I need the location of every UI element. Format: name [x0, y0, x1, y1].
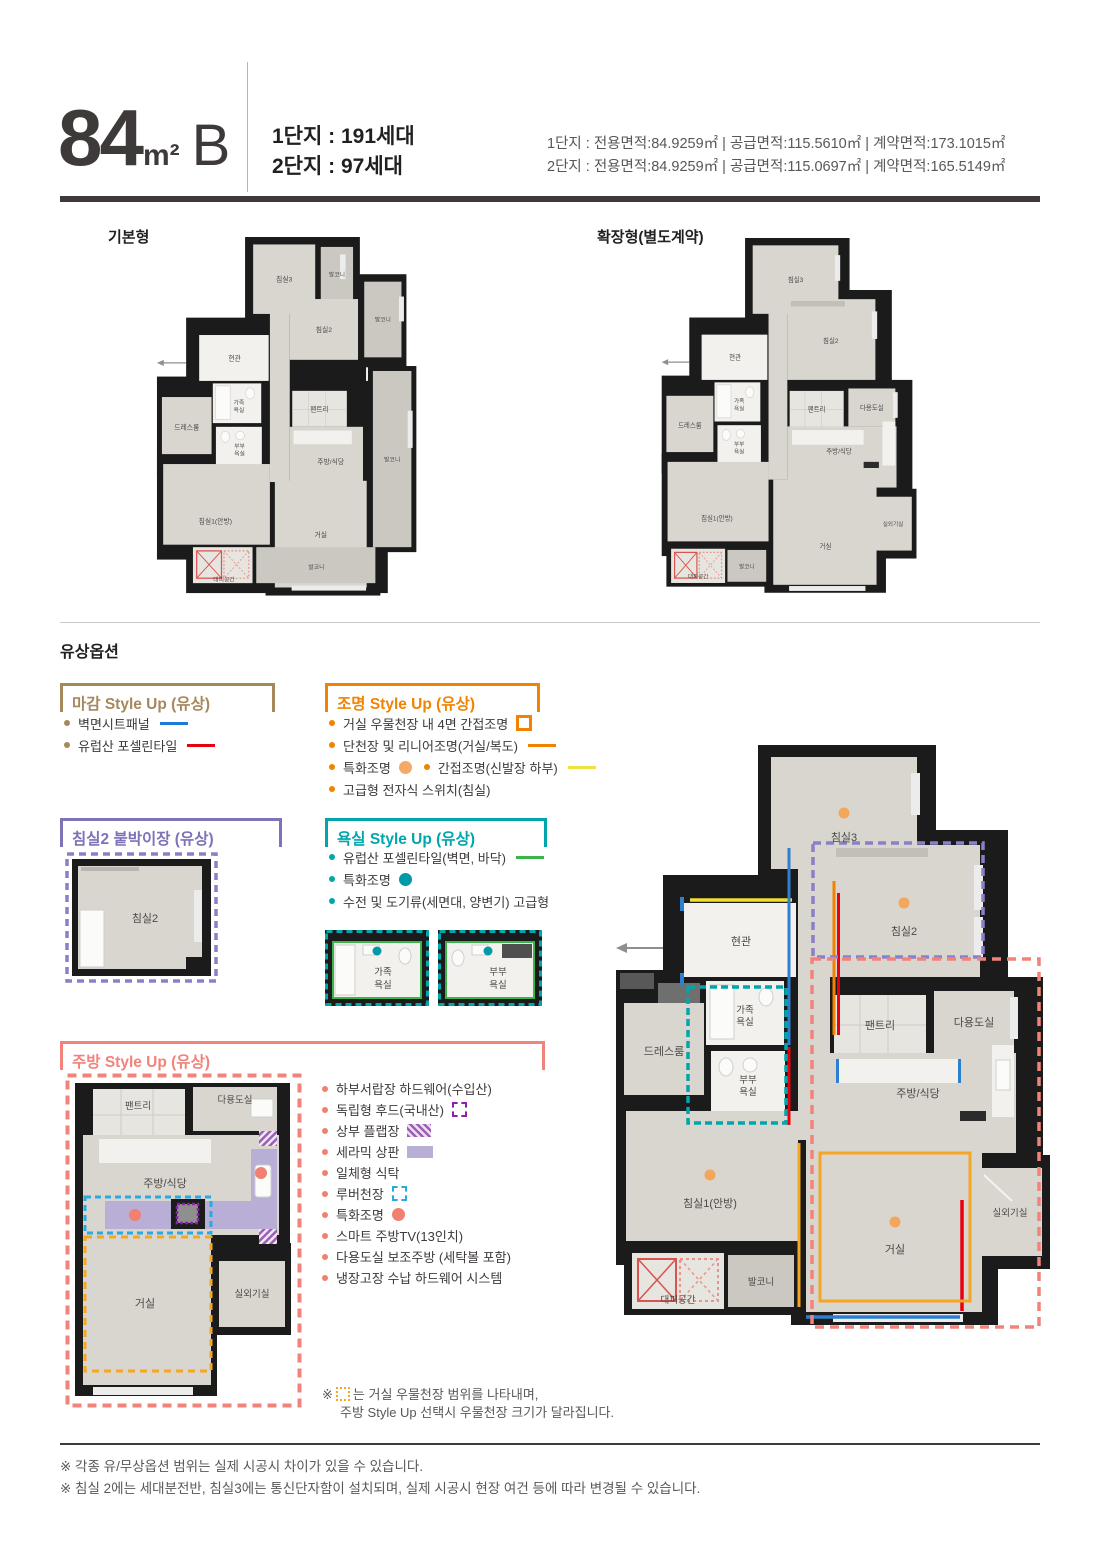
section-divider — [60, 622, 1040, 623]
kitchen-item-label: 다용도실 보조주방 (세탁볼 포함) — [336, 1247, 511, 1266]
kitchen-option-header: 주방 Style Up (유상) — [60, 1041, 545, 1071]
kitchen-item-label: 루버천장 — [336, 1184, 384, 1203]
finish-item-label: 벽면시트패널 — [78, 714, 150, 733]
room-label-bath-couple-1: 부부 — [234, 443, 245, 450]
bullet-icon — [322, 1107, 328, 1113]
room-label-pantry: 팬트리 — [125, 1101, 151, 1112]
list-item: 유럽산 포셀린타일(벽면, 바닥) — [329, 846, 549, 868]
room-label-bed1: 침실1(안방) — [683, 1197, 737, 1210]
orange-square-icon — [516, 715, 532, 731]
area-spec-line1: 1단지 : 전용면적:84.9259㎡ | 공급면적:115.5610㎡ | 계… — [547, 133, 1005, 156]
footnote-line2: ※ 침실 2에는 세대분전반, 침실3에는 통신단자함이 설치되며, 실제 시공… — [60, 1478, 700, 1500]
kitchen-item-label: 하부서랍장 하드웨어(수입산) — [336, 1079, 492, 1098]
bullet-icon — [329, 876, 335, 882]
list-item: 단천장 및 리니어조명(거실/복도) — [329, 734, 596, 756]
unit-count-line2: 2단지 : 97세대 — [272, 152, 415, 182]
room-label-outdoor: 실외기실 — [993, 1207, 1028, 1219]
bullet-icon — [322, 1212, 328, 1218]
room-label-bath-couple-1: 부부 — [734, 441, 744, 448]
lighting-item-label: 고급형 전자식 스위치(침실) — [343, 780, 490, 799]
room-label-outdoor: 실외기실 — [235, 1288, 270, 1300]
kitchen-item-label: 세라믹 상판 — [336, 1142, 399, 1161]
bullet-icon — [322, 1275, 328, 1281]
kitchen-item-label: 독립형 후드(국내산) — [336, 1100, 444, 1119]
bath-item-label: 특화조명 — [343, 870, 391, 889]
floor-plan-basic: 침실3 발코니 현관 침실2 발코니 가족 욕실 드레스룸 부부 욕실 팬트리 … — [152, 237, 430, 603]
footer-divider — [60, 1443, 1040, 1445]
blue-line-icon — [160, 722, 188, 725]
blue-sheet-panel-line — [958, 1059, 961, 1083]
lighting-item-label: 특화조명 — [343, 758, 391, 777]
blue-dashed-square-icon — [392, 1186, 407, 1201]
closet-option-header: 침실2 붙박이장 (유상) — [60, 818, 282, 848]
finish-option-header: 마감 Style Up (유상) — [60, 683, 275, 713]
blue-sheet-panel-line — [680, 973, 684, 985]
floor-plan-options-annotated: 침실3 현관 침실2 팬트리 다용도실 가족 욕실 드레스룸 부부 욕실 주방/… — [608, 745, 1056, 1345]
green-line-icon — [516, 856, 544, 859]
page-title: 84 m² B — [58, 98, 230, 179]
bullet-icon — [322, 1128, 328, 1134]
room-label-living: 거실 — [135, 1297, 155, 1310]
list-item: 다용도실 보조주방 (세탁볼 포함) — [322, 1246, 511, 1267]
area-spec-line2: 2단지 : 전용면적:84.9259㎡ | 공급면적:115.0697㎡ | 계… — [547, 156, 1005, 179]
room-label-kitchen: 주방/식당 — [896, 1087, 940, 1100]
finish-item-label: 유럽산 포셀린타일 — [78, 736, 177, 755]
family-bath-mini-plan: 가족 욕실 — [325, 930, 429, 1006]
room-label-bath-family-2: 욕실 — [374, 980, 391, 991]
kitchen-item-label: 스마트 주방TV(13인치) — [336, 1226, 463, 1245]
closet-mini-plan: 침실2 — [65, 852, 218, 983]
couple-bath-mini-plan: 부부 욕실 — [438, 930, 542, 1006]
blue-sheet-panel-line — [836, 1059, 839, 1083]
area-specs: 1단지 : 전용면적:84.9259㎡ | 공급면적:115.5610㎡ | 계… — [547, 133, 1005, 179]
hood-dashed-icon — [177, 1204, 198, 1223]
paid-options-title: 유상옵션 — [60, 638, 119, 662]
lighting-option-header: 조명 Style Up (유상) — [325, 683, 540, 713]
room-label-bath-couple-1: 부부 — [489, 967, 507, 978]
kitchen-option-items: 하부서랍장 하드웨어(수입산) 독립형 후드(국내산) 상부 플랩장 세라믹 상… — [322, 1078, 511, 1288]
rooms — [162, 244, 413, 590]
header-bar — [60, 196, 1040, 202]
footnote-line1: ※ 각종 유/무상옵션 범위는 실제 시공시 차이가 있을 수 있습니다. — [60, 1456, 700, 1478]
teal-dot-icon — [399, 873, 412, 886]
blue-sheet-panel-line — [680, 897, 684, 911]
unit-counts: 1단지 : 191세대 2단지 : 97세대 — [272, 122, 415, 183]
room-label-living: 거실 — [885, 1243, 905, 1256]
room-label-utility: 다용도실 — [218, 1095, 253, 1106]
list-item: 특화조명 — [322, 1204, 511, 1225]
list-item: 독립형 후드(국내산) — [322, 1099, 511, 1120]
floor-plan-extended: 침실3 현관 침실2 팬트리 다용도실 가족 욕실 드레스룸 부부 욕실 주방/… — [657, 238, 920, 605]
bath-item-label: 유럽산 포셀린타일(벽면, 바닥) — [343, 848, 506, 867]
list-item: 수전 및 도기류(세면대, 양변기) 고급형 — [329, 890, 549, 912]
purple-swatch-icon — [407, 1146, 433, 1158]
room-label-bed2: 침실2 — [891, 925, 917, 938]
list-item: 냉장고장 수납 하드웨어 시스템 — [322, 1267, 511, 1288]
storage-block — [620, 973, 654, 989]
note-mark: ※ — [322, 1387, 333, 1402]
bullet-icon — [329, 742, 335, 748]
room-label-bath-couple-2: 욕실 — [489, 980, 506, 991]
lighting-item-label: 간접조명(신발장 하부) — [438, 758, 558, 777]
salmon-dot-icon — [392, 1208, 405, 1221]
list-item: 고급형 전자식 스위치(침실) — [329, 778, 596, 800]
room-label-bath-couple-1: 부부 — [739, 1075, 757, 1086]
bullet-icon — [64, 720, 70, 726]
room-label-bath-family-2: 욕실 — [736, 1017, 753, 1028]
orange-dot-icon — [399, 761, 412, 774]
bath-option-items: 유럽산 포셀린타일(벽면, 바닥) 특화조명 수전 및 도기류(세면대, 양변기… — [329, 846, 549, 912]
basic-plan-label: 기본형 — [108, 226, 149, 247]
list-item: 거실 우물천장 내 4면 간접조명 — [329, 712, 596, 734]
list-item: 특화조명 — [329, 868, 549, 890]
kitchen-note-text1: 는 거실 우물천장 범위를 나타내며, — [353, 1387, 539, 1402]
purple-dashed-square-icon — [452, 1102, 467, 1117]
salmon-dot-icon — [255, 1167, 267, 1179]
orange-line-icon — [528, 744, 556, 747]
finish-option-items: 벽면시트패널 유럽산 포셀린타일 — [64, 712, 215, 756]
list-item: 루버천장 — [322, 1183, 511, 1204]
list-item: 특화조명간접조명(신발장 하부) — [329, 756, 596, 778]
red-line-icon — [187, 744, 215, 747]
yellow-line-icon — [568, 766, 596, 769]
kitchen-item-label: 냉장고장 수납 하드웨어 시스템 — [336, 1268, 502, 1287]
list-item: 스마트 주방TV(13인치) — [322, 1225, 511, 1246]
room-label-pantry: 팬트리 — [865, 1019, 895, 1032]
teal-dot-icon — [373, 947, 382, 956]
orange-dot-icon — [839, 808, 850, 819]
bath-option-header: 욕실 Style Up (유상) — [325, 818, 547, 848]
kitchen-item-label: 상부 플랩장 — [336, 1121, 399, 1140]
kitchen-note: ※는 거실 우물천장 범위를 나타내며, 주방 Style Up 선택시 우물천… — [322, 1386, 614, 1421]
entrance-arrow — [616, 943, 663, 953]
list-item: 일체형 식탁 — [322, 1162, 511, 1183]
bullet-icon — [322, 1254, 328, 1260]
teal-dot-icon — [484, 947, 493, 956]
kitchen-item-label: 특화조명 — [336, 1205, 384, 1224]
bullet-icon — [322, 1233, 328, 1239]
lighting-item-label: 단천장 및 리니어조명(거실/복도) — [343, 736, 518, 755]
kitchen-note-line2: 주방 Style Up 선택시 우물천장 크기가 달라집니다. — [322, 1404, 614, 1422]
bullet-icon — [329, 854, 335, 860]
title-size: 84 — [58, 98, 141, 178]
bullet-icon — [329, 898, 335, 904]
room-label-kitchen: 주방/식당 — [143, 1177, 187, 1190]
bullet-icon — [329, 786, 335, 792]
room-label-evac: 대피공간 — [661, 1295, 696, 1306]
hatched-swatch-icon — [407, 1124, 431, 1137]
room-label-balcony: 발코니 — [748, 1277, 774, 1288]
footnotes: ※ 각종 유/무상옵션 범위는 실제 시공시 차이가 있을 수 있습니다. ※ … — [60, 1456, 700, 1501]
bullet-icon — [424, 764, 430, 770]
bullet-icon — [329, 720, 335, 726]
list-item: 벽면시트패널 — [64, 712, 215, 734]
list-item: 세라믹 상판 — [322, 1141, 511, 1162]
bullet-icon — [322, 1191, 328, 1197]
title-divider — [247, 62, 248, 192]
room-label-dress: 드레스룸 — [644, 1045, 684, 1058]
orange-dot-icon — [899, 898, 910, 909]
list-item: 유럽산 포셀린타일 — [64, 734, 215, 756]
room-label-utility: 다용도실 — [954, 1016, 994, 1029]
bullet-icon — [64, 742, 70, 748]
title-unit: m² — [143, 139, 180, 173]
bullet-icon — [322, 1149, 328, 1155]
room-label-bed3: 침실3 — [831, 831, 857, 844]
kitchen-mini-plan: 팬트리 다용도실 주방/식당 거실 실외기실 — [65, 1073, 302, 1408]
title-type: B — [192, 112, 231, 179]
lighting-item-label: 거실 우물천장 내 4면 간접조명 — [343, 714, 508, 733]
kitchen-note-line1: ※는 거실 우물천장 범위를 나타내며, — [322, 1386, 614, 1404]
room-label-bath-family-1: 가족 — [374, 967, 392, 978]
room-label-bath-couple-2: 욕실 — [739, 1087, 756, 1098]
bullet-icon — [329, 764, 335, 770]
bullet-icon — [322, 1086, 328, 1092]
unit-count-line1: 1단지 : 191세대 — [272, 122, 415, 152]
orange-dot-icon — [890, 1217, 901, 1228]
room-label-bed2: 침실2 — [132, 912, 158, 925]
lighting-option-items: 거실 우물천장 내 4면 간접조명 단천장 및 리니어조명(거실/복도) 특화조… — [329, 712, 596, 800]
bath-item-label: 수전 및 도기류(세면대, 양변기) 고급형 — [343, 892, 549, 911]
room-label-entrance: 현관 — [731, 935, 751, 948]
bullet-icon — [322, 1170, 328, 1176]
entrance-arrow — [157, 360, 186, 366]
room-label-bath-family-1: 가족 — [736, 1005, 754, 1016]
orange-dotted-square-icon — [336, 1387, 350, 1401]
list-item: 상부 플랩장 — [322, 1120, 511, 1141]
kitchen-item-label: 일체형 식탁 — [336, 1163, 399, 1182]
orange-dot-icon — [705, 1170, 716, 1181]
salmon-dot-icon — [129, 1209, 141, 1221]
entrance-arrow — [662, 359, 690, 365]
list-item: 하부서랍장 하드웨어(수입산) — [322, 1078, 511, 1099]
